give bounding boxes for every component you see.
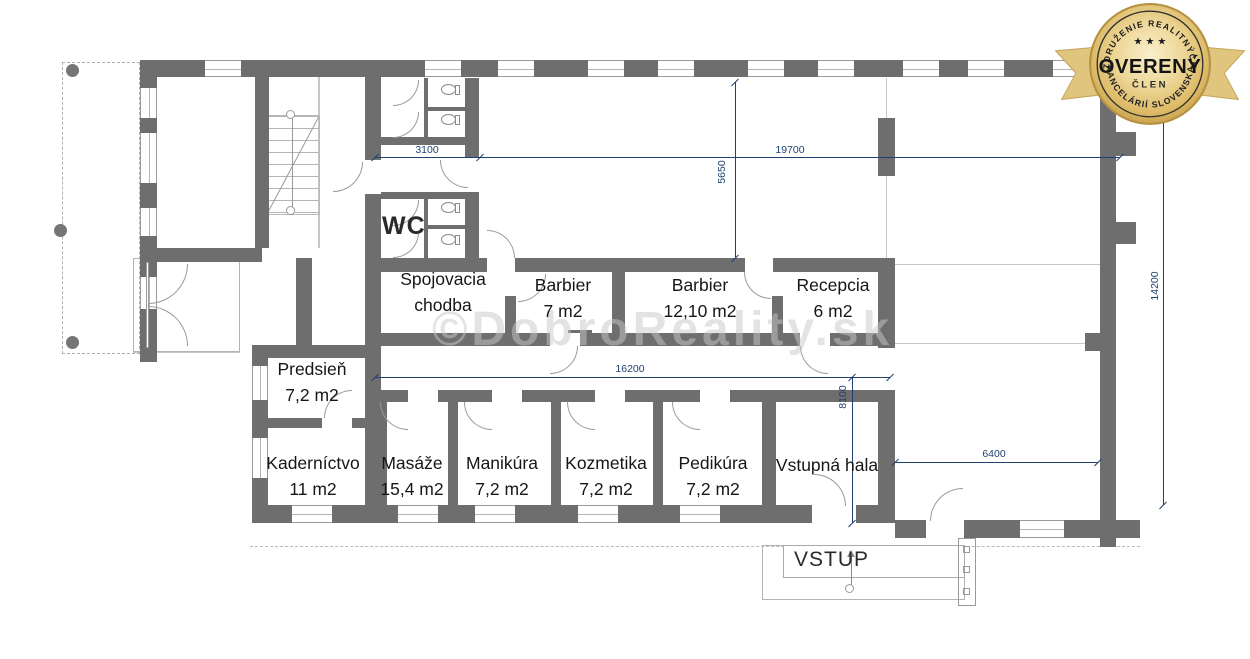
window (748, 60, 784, 77)
room-label-manikura: Manikúra 7,2 m2 (455, 450, 549, 502)
column-dot (54, 224, 67, 237)
room-label-recepcia: Recepcia 6 m2 (778, 272, 888, 324)
wall-segment (1116, 222, 1136, 244)
door-opening (926, 520, 964, 538)
room-name: Masáže (376, 450, 448, 476)
window (140, 133, 157, 183)
wall-segment (252, 505, 895, 523)
room-label-barbier-12: Barbier 12,10 m2 (625, 272, 775, 324)
wall-segment (878, 390, 895, 505)
wall-segment (878, 118, 895, 176)
room-area: 7,2 m2 (256, 382, 368, 408)
room-area: 7,2 m2 (557, 476, 655, 502)
room-label-pedikura: Pedikúra 7,2 m2 (665, 450, 761, 502)
room-name: Barbier (625, 272, 775, 298)
dimension-14200: 14200 (1149, 256, 1161, 316)
door-opening (812, 505, 856, 523)
wall-segment (296, 258, 312, 352)
column-dot (66, 336, 79, 349)
wall-segment (428, 107, 465, 111)
dimension-line (735, 82, 736, 258)
dimension-19700: 19700 (758, 144, 822, 156)
room-area: 11 m2 (253, 476, 373, 502)
window (968, 60, 1004, 77)
floor-plan: ©DobroReality.sk Spojovacia chodba Barbi… (0, 0, 1250, 659)
door-swing-arc (672, 402, 700, 430)
door-swing-arc (930, 488, 963, 521)
room-area: 12,10 m2 (625, 298, 775, 324)
room-name: Kaderníctvo (253, 450, 373, 476)
thin-line (895, 343, 1100, 344)
door-swing-arc (814, 474, 846, 506)
room-area: 7,2 m2 (455, 476, 549, 502)
stair-node (286, 110, 295, 119)
stair-node (286, 206, 295, 215)
annex-outline (62, 62, 140, 354)
wall-segment (428, 225, 465, 229)
room-name: Kozmetika (557, 450, 655, 476)
entrance-label: VSTUP (794, 548, 869, 572)
door-swing-arc (333, 162, 363, 192)
room-name: Vstupná hala (776, 455, 878, 475)
window (578, 505, 618, 523)
toilet-icon (441, 84, 456, 95)
toilet-icon (441, 202, 456, 213)
room-name: Spojovacia chodba (400, 269, 486, 315)
door-swing-arc (567, 402, 595, 430)
wall-segment (1116, 132, 1136, 156)
room-label-kadernictvo: Kaderníctvo 11 m2 (253, 450, 373, 502)
room-label-masaze: Masáže 15,4 m2 (376, 450, 448, 502)
door-opening (365, 160, 381, 194)
certification-badge: ZDRUŽENIE REALITNÝCH ★ ★ ★ OVERENÝ ČLEN … (1053, 0, 1247, 132)
dimension-5650: 5650 (716, 142, 728, 202)
dimension-line (375, 377, 890, 378)
room-area: 15,4 m2 (376, 476, 448, 502)
door-leaf (146, 262, 149, 348)
thin-line (890, 264, 1100, 265)
door-opening (745, 258, 773, 272)
door-opening (322, 418, 352, 428)
room-area: 7 m2 (513, 298, 613, 324)
door-opening (595, 390, 625, 402)
window (205, 60, 241, 77)
toilet-icon (441, 114, 456, 125)
room-label-kozmetika: Kozmetika 7,2 m2 (557, 450, 655, 502)
door-swing-arc (393, 80, 419, 106)
panel-detail (963, 566, 970, 573)
door-opening (700, 390, 730, 402)
room-name: Barbier (513, 272, 613, 298)
room-label-vstupna-hala: Vstupná hala (763, 452, 891, 478)
room-label-predsien: Predsieň 7,2 m2 (256, 356, 368, 408)
window (1020, 520, 1064, 538)
window (680, 505, 720, 523)
window (140, 88, 157, 118)
window (658, 60, 694, 77)
room-area: 6 m2 (778, 298, 888, 324)
dimension-line (895, 462, 1098, 463)
badge-stars: ★ ★ ★ (1134, 37, 1167, 48)
wall-segment (252, 418, 375, 428)
door-swing-arc (464, 402, 492, 430)
door-opening (492, 390, 522, 402)
wall-segment (140, 248, 262, 262)
door-swing-arc (440, 160, 468, 188)
wall-segment (1085, 333, 1100, 351)
door-swing-arc (393, 112, 419, 138)
wall-segment (762, 390, 776, 505)
dimension-8100: 8100 (837, 367, 849, 427)
room-name: Predsieň (256, 356, 368, 382)
panel-detail (963, 546, 970, 553)
wall-segment (1100, 78, 1116, 547)
room-label-wc: WC (382, 212, 426, 241)
dimension-line (1163, 90, 1164, 505)
window (818, 60, 854, 77)
dimension-16200: 16200 (598, 363, 662, 375)
site-boundary-line (250, 546, 1140, 547)
room-area: 7,2 m2 (665, 476, 761, 502)
dimension-line (852, 377, 853, 523)
window (425, 60, 461, 77)
window (140, 208, 157, 236)
wall-segment (381, 192, 479, 199)
window (292, 505, 332, 523)
window (475, 505, 515, 523)
door-opening (408, 390, 438, 402)
window (903, 60, 939, 77)
panel-detail (963, 588, 970, 595)
room-name: Manikúra (455, 450, 549, 476)
door-swing-arc (487, 230, 515, 258)
room-name: Recepcia (778, 272, 888, 298)
toilet-icon (441, 234, 456, 245)
wall-segment (255, 77, 269, 248)
window (588, 60, 624, 77)
dimension-6400: 6400 (962, 448, 1026, 460)
room-name: Pedikúra (665, 450, 761, 476)
room-label-barbier-7: Barbier 7 m2 (513, 272, 613, 324)
entrance-node (845, 584, 854, 593)
column-dot (66, 64, 79, 77)
badge-member: ČLEN (1132, 78, 1168, 90)
dimension-line (375, 157, 1120, 158)
wall-segment (375, 390, 895, 402)
window (398, 505, 438, 523)
window (498, 60, 534, 77)
dimension-3100: 3100 (395, 144, 459, 156)
room-label-spojovacia-chodba: Spojovacia chodba (380, 266, 506, 318)
